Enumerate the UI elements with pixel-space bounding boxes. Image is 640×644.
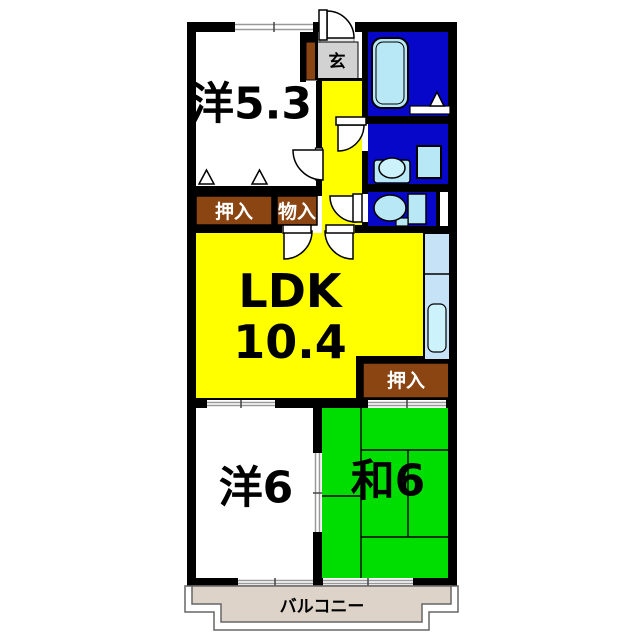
label-entrance: 玄 xyxy=(329,51,346,72)
entrance-door xyxy=(319,10,354,40)
label-ldk: LDK xyxy=(238,264,343,318)
bath-door-shelf xyxy=(410,106,450,114)
label-balcony: バルコニー xyxy=(280,597,365,617)
kitchen-sink xyxy=(428,304,446,352)
label-closet-right: 押入 xyxy=(387,369,425,392)
label-japanese-6: 和6 xyxy=(351,456,426,507)
bathtub xyxy=(372,38,408,108)
fusuma-closet-japanese6 xyxy=(368,400,446,408)
label-closet-top: 押入 xyxy=(215,200,253,223)
washbasin xyxy=(374,158,410,183)
floor-plan-diagram: 洋5.3 玄 押入 物入 LDK 10.4 押入 洋6 和6 バルコニー xyxy=(0,0,640,640)
sliding-door-ldk-west6 xyxy=(207,400,275,408)
sliding-door-west6-japanese6 xyxy=(313,453,322,532)
label-storage: 物入 xyxy=(278,200,316,223)
wall-top-right xyxy=(355,22,457,32)
washing-machine xyxy=(417,146,441,178)
label-western-5-3: 洋5.3 xyxy=(190,79,312,130)
label-ldk-area: 10.4 xyxy=(233,315,347,369)
label-western-6: 洋6 xyxy=(219,463,294,514)
window-japanese6-balcony xyxy=(323,578,413,586)
kitchen-counter xyxy=(424,233,450,360)
floor-plan-page: 洋5.3 玄 押入 物入 LDK 10.4 押入 洋6 和6 バルコニー xyxy=(0,0,640,640)
shoe-cabinet xyxy=(306,42,316,80)
wall-bottom xyxy=(187,578,457,586)
window-west6-balcony xyxy=(238,578,313,586)
window-top xyxy=(235,22,313,32)
